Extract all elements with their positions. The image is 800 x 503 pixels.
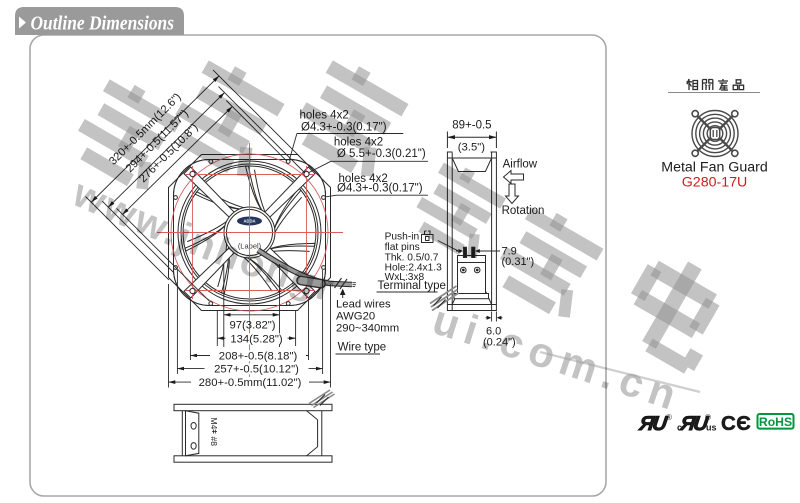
svg-text:Outline Dimensions: Outline Dimensions	[31, 13, 175, 35]
svg-text:Push-in: Push-in	[385, 232, 420, 243]
svg-text:M4: M4	[209, 418, 219, 430]
svg-text:257+-0.5(10.12"): 257+-0.5(10.12")	[214, 363, 299, 375]
svg-text:us: us	[706, 423, 717, 433]
svg-text:280+-0.5mm(11.02"): 280+-0.5mm(11.02")	[199, 377, 302, 389]
svg-text:ui.com.cn: ui.com.cn	[428, 296, 689, 421]
svg-text:flat pins: flat pins	[385, 242, 420, 253]
svg-text:AWG20: AWG20	[336, 311, 375, 323]
svg-text:Airflow: Airflow	[503, 159, 538, 171]
svg-text:#8: #8	[209, 437, 219, 447]
svg-text:Lead wires: Lead wires	[336, 299, 391, 311]
svg-text:G280-17U: G280-17U	[682, 175, 747, 191]
svg-text:Thk. 0.5/0.7: Thk. 0.5/0.7	[385, 252, 439, 263]
svg-text:208+-0.5(8.18"): 208+-0.5(8.18")	[219, 350, 298, 362]
svg-text:290~340mm: 290~340mm	[336, 323, 399, 335]
svg-text:97(3.82"): 97(3.82")	[229, 320, 275, 332]
svg-text:Wire type: Wire type	[338, 342, 387, 354]
svg-text:Terminal type: Terminal type	[378, 280, 446, 292]
svg-text:Ø4.3+-0.3(0.17"): Ø4.3+-0.3(0.17")	[337, 182, 423, 194]
svg-text:RoHS: RoHS	[759, 415, 792, 429]
svg-text:Metal Fan Guard: Metal Fan Guard	[661, 160, 767, 176]
svg-text:CЄ: CЄ	[721, 412, 751, 435]
svg-text:®: ®	[705, 413, 711, 422]
svg-text:134(5.28"): 134(5.28")	[230, 333, 283, 345]
svg-text:(3.5"): (3.5")	[458, 142, 485, 154]
svg-text:89+-0.5: 89+-0.5	[452, 120, 491, 132]
